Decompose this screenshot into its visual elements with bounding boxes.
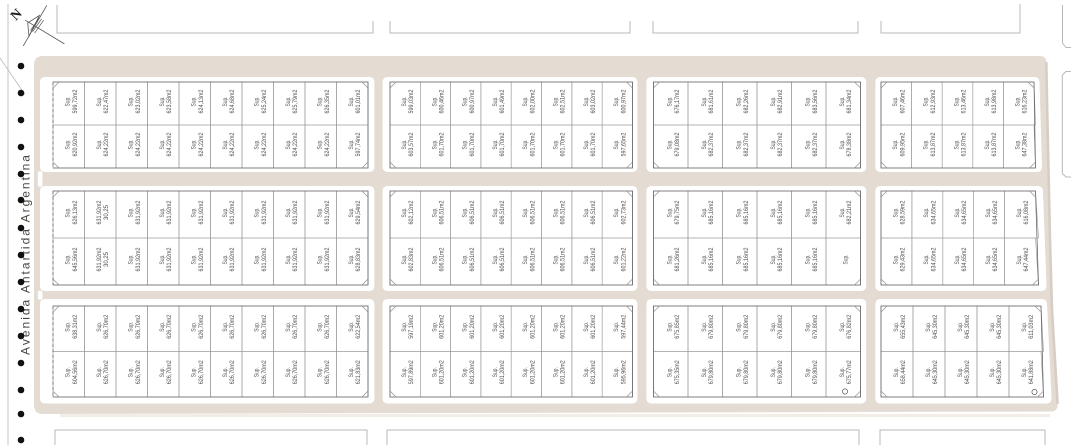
svg-text:Sup.: Sup. — [613, 96, 620, 106]
svg-text:Sup.: Sup. — [65, 322, 72, 332]
svg-text:601,20m2: 601,20m2 — [560, 314, 567, 338]
svg-text:685,16m2: 685,16m2 — [812, 247, 819, 271]
svg-text:624,22m2: 624,22m2 — [135, 132, 142, 156]
svg-text:Sup.: Sup. — [159, 254, 166, 264]
svg-text:Sup.: Sup. — [984, 96, 991, 106]
svg-text:620,92m2: 620,92m2 — [72, 132, 79, 156]
svg-text:Sup.: Sup. — [128, 254, 135, 264]
svg-text:Sup.: Sup. — [128, 96, 135, 106]
svg-text:634,65m2: 634,65m2 — [992, 247, 999, 271]
svg-text:Sup.: Sup. — [431, 96, 438, 106]
svg-text:Sup.: Sup. — [839, 139, 846, 149]
svg-text:Sup.: Sup. — [522, 207, 529, 217]
svg-text:683,56m2: 683,56m2 — [812, 89, 819, 113]
svg-text:631,92m2: 631,92m2 — [198, 200, 205, 224]
svg-text:Sup.: Sup. — [401, 254, 408, 264]
svg-text:Sup.: Sup. — [985, 254, 992, 264]
svg-text:631,92m2: 631,92m2 — [292, 247, 299, 271]
svg-text:679,08m2: 679,08m2 — [674, 132, 681, 156]
svg-text:631,92m2: 631,92m2 — [229, 247, 236, 271]
svg-text:681,61m2: 681,61m2 — [708, 89, 715, 113]
svg-text:Sup.: Sup. — [317, 139, 324, 149]
svg-text:622,54m2: 622,54m2 — [355, 314, 362, 338]
svg-text:Sup.: Sup. — [191, 367, 198, 377]
svg-text:622,47m2: 622,47m2 — [103, 89, 110, 113]
svg-text:601,20m2: 601,20m2 — [469, 360, 476, 384]
svg-text:Sup.: Sup. — [893, 322, 900, 332]
svg-text:623,58m2: 623,58m2 — [166, 89, 173, 113]
svg-text:658,44m2: 658,44m2 — [900, 360, 907, 384]
svg-text:Sup.: Sup. — [923, 96, 930, 106]
svg-text:631,92m2: 631,92m2 — [324, 247, 331, 271]
svg-text:634,65m2: 634,65m2 — [961, 247, 968, 271]
svg-text:Sup.: Sup. — [736, 367, 743, 377]
svg-text:645,30m2: 645,30m2 — [996, 314, 1003, 338]
svg-text:Sup.: Sup. — [222, 367, 229, 377]
svg-text:Sup.: Sup. — [254, 322, 261, 332]
svg-text:606,51m2: 606,51m2 — [529, 200, 536, 224]
svg-text:Sup.: Sup. — [770, 254, 777, 264]
svg-text:600,97m2: 600,97m2 — [469, 89, 476, 113]
svg-text:Sup.: Sup. — [317, 207, 324, 217]
svg-text:Sup.: Sup. — [159, 367, 166, 377]
svg-text:Sup.: Sup. — [159, 139, 166, 149]
svg-text:685,16m2: 685,16m2 — [708, 247, 715, 271]
svg-text:Sup.: Sup. — [492, 367, 499, 377]
svg-text:631,92m2: 631,92m2 — [166, 200, 173, 224]
svg-text:Sup.: Sup. — [770, 207, 777, 217]
svg-text:631,92m2: 631,92m2 — [198, 247, 205, 271]
svg-text:626,13m2: 626,13m2 — [72, 200, 79, 224]
svg-text:601,01m2: 601,01m2 — [355, 89, 362, 113]
svg-text:Sup.: Sup. — [553, 322, 560, 332]
svg-text:601,20m2: 601,20m2 — [439, 314, 446, 338]
svg-text:Sup.: Sup. — [191, 322, 198, 332]
svg-text:Sup.: Sup. — [953, 96, 960, 106]
svg-text:Sup.: Sup. — [492, 322, 499, 332]
svg-text:626,70m2: 626,70m2 — [261, 360, 268, 384]
svg-text:Sup.: Sup. — [222, 322, 229, 332]
svg-text:Sup.: Sup. — [613, 139, 620, 149]
svg-text:601,20m2: 601,20m2 — [499, 314, 506, 338]
svg-text:Sup.: Sup. — [701, 96, 708, 106]
svg-text:Sup.: Sup. — [667, 139, 674, 149]
svg-text:599,72m2: 599,72m2 — [72, 89, 79, 113]
svg-text:626,35m2: 626,35m2 — [324, 89, 331, 113]
svg-text:601,70m2: 601,70m2 — [499, 132, 506, 156]
svg-text:Sup.: Sup. — [1016, 207, 1023, 217]
svg-text:631,92m2: 631,92m2 — [261, 247, 268, 271]
svg-text:Sup.: Sup. — [317, 367, 324, 377]
svg-text:600,97m2: 600,97m2 — [620, 89, 627, 113]
svg-text:Sup.: Sup. — [667, 207, 674, 217]
svg-text:625,24m2: 625,24m2 — [261, 89, 268, 113]
svg-text:626,70m2: 626,70m2 — [103, 314, 110, 338]
svg-text:Sup.: Sup. — [348, 254, 355, 264]
svg-text:Sup.: Sup. — [805, 254, 812, 264]
svg-text:613,46m2: 613,46m2 — [961, 89, 968, 113]
svg-text:Sup.: Sup. — [770, 96, 777, 106]
svg-text:645,30m2: 645,30m2 — [964, 360, 971, 384]
svg-text:682,37m2: 682,37m2 — [708, 132, 715, 156]
svg-text:645,56m2: 645,56m2 — [72, 247, 79, 271]
svg-text:616,23m2: 616,23m2 — [1022, 89, 1029, 113]
svg-text:679,80m2: 679,80m2 — [743, 314, 750, 338]
svg-text:Sup.: Sup. — [191, 254, 198, 264]
svg-text:597,19m2: 597,19m2 — [408, 314, 415, 338]
svg-text:Sup.: Sup. — [953, 139, 960, 149]
svg-text:606,51m2: 606,51m2 — [529, 247, 536, 271]
svg-text:612,93m2: 612,93m2 — [930, 89, 937, 113]
svg-text:631,92m2: 631,92m2 — [229, 200, 236, 224]
svg-text:Sup.: Sup. — [254, 367, 261, 377]
svg-text:Sup.: Sup. — [583, 96, 590, 106]
svg-text:679,80m2: 679,80m2 — [812, 360, 819, 384]
svg-text:606,51m2: 606,51m2 — [439, 200, 446, 224]
svg-text:601,70m2: 601,70m2 — [529, 132, 536, 156]
svg-text:621,83m2: 621,83m2 — [355, 360, 362, 384]
svg-text:603,02m2: 603,02m2 — [590, 89, 597, 113]
svg-text:601,70m2: 601,70m2 — [439, 132, 446, 156]
svg-text:647,44m2: 647,44m2 — [1023, 247, 1030, 271]
svg-text:Sup.: Sup. — [254, 96, 261, 106]
svg-text:Sup.: Sup. — [553, 367, 560, 377]
svg-text:626,70m2: 626,70m2 — [324, 360, 331, 384]
svg-text:Sup.: Sup. — [1021, 367, 1028, 377]
svg-text:602,73m2: 602,73m2 — [620, 200, 627, 224]
svg-text:Sup.: Sup. — [522, 367, 529, 377]
svg-text:Sup.: Sup. — [462, 367, 469, 377]
svg-text:Sup.: Sup. — [191, 96, 198, 106]
svg-text:624,22m2: 624,22m2 — [229, 132, 236, 156]
svg-text:626,70m2: 626,70m2 — [135, 360, 142, 384]
svg-text:Sup.: Sup. — [522, 322, 529, 332]
svg-text:Sup.: Sup. — [191, 207, 198, 217]
svg-text:Sup.: Sup. — [1015, 96, 1022, 106]
svg-text:Sup.: Sup. — [348, 139, 355, 149]
svg-text:613,98m2: 613,98m2 — [991, 89, 998, 113]
svg-text:626,70m2: 626,70m2 — [261, 314, 268, 338]
svg-text:Sup.: Sup. — [667, 367, 674, 377]
svg-text:678,38m2: 678,38m2 — [846, 132, 853, 156]
svg-text:638,31m2: 638,31m2 — [72, 314, 79, 338]
svg-text:Sup.: Sup. — [957, 367, 964, 377]
svg-text:Sup.: Sup. — [65, 254, 72, 264]
svg-text:Sup.: Sup. — [285, 254, 292, 264]
svg-text:623,02m2: 623,02m2 — [135, 89, 142, 113]
svg-text:601,20m2: 601,20m2 — [560, 360, 567, 384]
svg-text:601,20m2: 601,20m2 — [439, 360, 446, 384]
svg-text:Sup.: Sup. — [839, 207, 846, 217]
svg-text:Sup.: Sup. — [401, 322, 408, 332]
svg-text:Sup.: Sup. — [462, 207, 469, 217]
svg-text:Sup.: Sup. — [128, 207, 135, 217]
svg-text:Sup.: Sup. — [892, 254, 899, 264]
svg-text:Sup.: Sup. — [1021, 322, 1028, 332]
svg-text:Sup.: Sup. — [736, 254, 743, 264]
svg-text:Sup.: Sup. — [285, 96, 292, 106]
svg-text:611,03m2: 611,03m2 — [1028, 314, 1035, 338]
svg-text:Sup.: Sup. — [128, 139, 135, 149]
svg-text:682,21m2: 682,21m2 — [846, 200, 853, 224]
svg-text:613,87m2: 613,87m2 — [930, 132, 937, 156]
svg-text:Sup.: Sup. — [96, 96, 103, 106]
svg-text:626,70m2: 626,70m2 — [229, 360, 236, 384]
svg-text:631,92m2: 631,92m2 — [96, 200, 103, 224]
svg-text:613,87m2: 613,87m2 — [991, 132, 998, 156]
svg-text:Sup.: Sup. — [1016, 254, 1023, 264]
svg-text:599,03m2: 599,03m2 — [408, 89, 415, 113]
svg-text:631,92m2: 631,92m2 — [261, 200, 268, 224]
svg-text:Sup.: Sup. — [923, 139, 930, 149]
svg-text:634,65m2: 634,65m2 — [930, 247, 937, 271]
svg-text:Sup.: Sup. — [613, 207, 620, 217]
svg-text:685,16m2: 685,16m2 — [777, 200, 784, 224]
svg-text:601,20m2: 601,20m2 — [529, 314, 536, 338]
svg-text:601,22m2: 601,22m2 — [620, 247, 627, 271]
svg-text:Sup.: Sup. — [954, 207, 961, 217]
svg-text:626,70m2: 626,70m2 — [198, 360, 205, 384]
svg-text:634,65m2: 634,65m2 — [930, 200, 937, 224]
svg-text:Sup.: Sup. — [431, 207, 438, 217]
svg-text:Sup.: Sup. — [667, 96, 674, 106]
svg-text:Sup.: Sup. — [522, 139, 529, 149]
svg-text:Sup.: Sup. — [701, 322, 708, 332]
svg-text:Sup.: Sup. — [989, 367, 996, 377]
svg-text:602,00m2: 602,00m2 — [529, 89, 536, 113]
svg-text:624,22m2: 624,22m2 — [261, 132, 268, 156]
svg-text:Sup.: Sup. — [701, 367, 708, 377]
svg-text:606,51m2: 606,51m2 — [499, 200, 506, 224]
svg-text:Sup.: Sup. — [65, 139, 72, 149]
svg-text:Sup.: Sup. — [492, 207, 499, 217]
svg-text:655,43m2: 655,43m2 — [900, 314, 907, 338]
svg-text:628,59m2: 628,59m2 — [900, 200, 907, 224]
svg-text:682,26m2: 682,26m2 — [743, 89, 750, 113]
svg-text:Sup.: Sup. — [985, 207, 992, 217]
svg-text:Sup.: Sup. — [736, 139, 743, 149]
svg-text:645,30m2: 645,30m2 — [932, 360, 939, 384]
svg-text:679,80m2: 679,80m2 — [777, 314, 784, 338]
svg-text:Sup.: Sup. — [317, 322, 324, 332]
svg-text:Sup.: Sup. — [65, 367, 72, 377]
svg-text:685,16m2: 685,16m2 — [743, 200, 750, 224]
svg-text:606,51m2: 606,51m2 — [560, 200, 567, 224]
svg-text:597,65m2: 597,65m2 — [620, 132, 627, 156]
svg-text:603,57m2: 603,57m2 — [408, 132, 415, 156]
svg-text:Sup.: Sup. — [736, 96, 743, 106]
svg-text:Sup.: Sup. — [462, 322, 469, 332]
svg-text:679,80m2: 679,80m2 — [777, 360, 784, 384]
svg-text:631,92m2: 631,92m2 — [292, 200, 299, 224]
svg-text:Sup.: Sup. — [401, 96, 408, 106]
svg-text:Sup.: Sup. — [957, 322, 964, 332]
svg-text:Sup.: Sup. — [892, 96, 899, 106]
svg-text:Sup.: Sup. — [222, 139, 229, 149]
svg-text:Sup.: Sup. — [285, 367, 292, 377]
svg-text:676,17m2: 676,17m2 — [674, 89, 681, 113]
svg-text:685,16m2: 685,16m2 — [708, 200, 715, 224]
svg-text:Sup.: Sup. — [553, 139, 560, 149]
svg-text:Sup.: Sup. — [925, 367, 932, 377]
svg-text:681,34m2: 681,34m2 — [846, 89, 853, 113]
svg-text:Sup.: Sup. — [583, 207, 590, 217]
svg-text:631,92m2: 631,92m2 — [135, 200, 142, 224]
svg-text:Sup.: Sup. — [613, 254, 620, 264]
svg-text:624,22m2: 624,22m2 — [103, 132, 110, 156]
svg-text:685,16m2: 685,16m2 — [812, 200, 819, 224]
svg-text:Sup.: Sup. — [492, 96, 499, 106]
svg-text:Sup.: Sup. — [923, 254, 930, 264]
svg-text:Sup.: Sup. — [839, 322, 846, 332]
svg-text:685,16m2: 685,16m2 — [777, 247, 784, 271]
svg-text:624,22m2: 624,22m2 — [166, 132, 173, 156]
svg-text:602,12m2: 602,12m2 — [408, 200, 415, 224]
svg-text:Sup.: Sup. — [839, 96, 846, 106]
svg-text:30,25: 30,25 — [103, 205, 110, 220]
svg-text:Sup.: Sup. — [1015, 139, 1022, 149]
svg-text:645,30m2: 645,30m2 — [932, 314, 939, 338]
svg-text:Sup.: Sup. — [770, 367, 777, 377]
svg-text:Sup.: Sup. — [923, 207, 930, 217]
svg-text:634,65m2: 634,65m2 — [992, 200, 999, 224]
svg-text:631,92m2: 631,92m2 — [166, 247, 173, 271]
svg-text:624,22m2: 624,22m2 — [198, 132, 205, 156]
svg-text:616,08m2: 616,08m2 — [1023, 200, 1030, 224]
svg-text:597,44m2: 597,44m2 — [620, 314, 627, 338]
svg-text:626,70m2: 626,70m2 — [229, 314, 236, 338]
svg-text:600,46m2: 600,46m2 — [439, 89, 446, 113]
svg-text:629,43m2: 629,43m2 — [900, 247, 907, 271]
svg-text:Sup.: Sup. — [553, 254, 560, 264]
svg-text:679,75m2: 679,75m2 — [674, 200, 681, 224]
svg-text:601,20m2: 601,20m2 — [499, 360, 506, 384]
svg-text:Sup.: Sup. — [159, 207, 166, 217]
svg-text:601,20m2: 601,20m2 — [590, 360, 597, 384]
svg-text:613,87m2: 613,87m2 — [961, 132, 968, 156]
svg-text:625,79m2: 625,79m2 — [292, 89, 299, 113]
svg-text:626,70m2: 626,70m2 — [292, 360, 299, 384]
svg-text:Sup.: Sup. — [431, 139, 438, 149]
svg-text:601,20m2: 601,20m2 — [529, 360, 536, 384]
svg-text:645,30m2: 645,30m2 — [996, 360, 1003, 384]
svg-text:Sup.: Sup. — [583, 322, 590, 332]
svg-text:606,51m2: 606,51m2 — [590, 247, 597, 271]
svg-text:601,70m2: 601,70m2 — [590, 132, 597, 156]
svg-text:601,70m2: 601,70m2 — [469, 132, 476, 156]
svg-text:Sup.: Sup. — [954, 254, 961, 264]
svg-text:Sup.: Sup. — [348, 322, 355, 332]
svg-text:606,51m2: 606,51m2 — [499, 247, 506, 271]
svg-text:30,25: 30,25 — [103, 252, 110, 267]
svg-text:606,51m2: 606,51m2 — [439, 247, 446, 271]
svg-text:624,13m2: 624,13m2 — [198, 89, 205, 113]
svg-text:Sup.: Sup. — [65, 96, 72, 106]
svg-text:Sup.: Sup. — [736, 322, 743, 332]
svg-text:Sup.: Sup. — [96, 322, 103, 332]
svg-text:Sup.: Sup. — [522, 96, 529, 106]
svg-text:Sup.: Sup. — [254, 207, 261, 217]
svg-text:Sup.: Sup. — [805, 322, 812, 332]
svg-text:601,70m2: 601,70m2 — [560, 132, 567, 156]
svg-text:601,20m2: 601,20m2 — [590, 314, 597, 338]
svg-text:607,46m2: 607,46m2 — [899, 89, 906, 113]
svg-text:Sup.: Sup. — [65, 207, 72, 217]
svg-text:624,22m2: 624,22m2 — [324, 132, 331, 156]
svg-text:609,95m2: 609,95m2 — [899, 132, 906, 156]
svg-text:Sup.: Sup. — [401, 207, 408, 217]
svg-text:602,83m2: 602,83m2 — [408, 247, 415, 271]
svg-text:Sup.: Sup. — [839, 367, 846, 377]
svg-text:Sup.: Sup. — [348, 96, 355, 106]
svg-text:Sup.: Sup. — [667, 254, 674, 264]
svg-text:Sup.: Sup. — [128, 322, 135, 332]
svg-text:Sup.: Sup. — [401, 367, 408, 377]
svg-text:679,80m2: 679,80m2 — [708, 360, 715, 384]
svg-text:681,26m2: 681,26m2 — [674, 247, 681, 271]
svg-text:Sup.: Sup. — [492, 139, 499, 149]
svg-text:597,74m2: 597,74m2 — [355, 132, 362, 156]
svg-text:675,85m2: 675,85m2 — [674, 314, 681, 338]
svg-text:Sup.: Sup. — [285, 139, 292, 149]
svg-text:641,88m2: 641,88m2 — [1028, 360, 1035, 384]
svg-text:604,56m2: 604,56m2 — [72, 360, 79, 384]
svg-text:602,51m2: 602,51m2 — [560, 89, 567, 113]
svg-text:Sup.: Sup. — [348, 367, 355, 377]
svg-text:626,70m2: 626,70m2 — [324, 314, 331, 338]
svg-text:Sup.: Sup. — [805, 96, 812, 106]
svg-text:Sup.: Sup. — [431, 254, 438, 264]
svg-text:682,37m2: 682,37m2 — [777, 132, 784, 156]
svg-text:Sup.: Sup. — [805, 207, 812, 217]
svg-text:Sup.: Sup. — [805, 139, 812, 149]
svg-text:Sup.: Sup. — [701, 139, 708, 149]
svg-text:601,20m2: 601,20m2 — [469, 314, 476, 338]
svg-text:Sup.: Sup. — [285, 207, 292, 217]
svg-text:Sup.: Sup. — [843, 254, 850, 264]
svg-text:606,51m2: 606,51m2 — [469, 200, 476, 224]
svg-text:626,70m2: 626,70m2 — [135, 314, 142, 338]
svg-text:682,91m2: 682,91m2 — [777, 89, 784, 113]
svg-text:Sup.: Sup. — [701, 254, 708, 264]
svg-text:597,89m2: 597,89m2 — [408, 360, 415, 384]
svg-text:685,16m2: 685,16m2 — [743, 247, 750, 271]
svg-text:Sup.: Sup. — [893, 367, 900, 377]
svg-text:Sup.: Sup. — [892, 207, 899, 217]
svg-text:Sup.: Sup. — [317, 96, 324, 106]
svg-text:Sup.: Sup. — [401, 139, 408, 149]
svg-text:Sup.: Sup. — [159, 322, 166, 332]
svg-text:675,77m2: 675,77m2 — [846, 360, 853, 384]
svg-text:Sup.: Sup. — [431, 367, 438, 377]
svg-text:626,70m2: 626,70m2 — [166, 314, 173, 338]
svg-text:Sup.: Sup. — [462, 254, 469, 264]
svg-text:Sup.: Sup. — [583, 367, 590, 377]
svg-text:Sup.: Sup. — [770, 139, 777, 149]
svg-text:Sup.: Sup. — [553, 207, 560, 217]
svg-text:682,37m2: 682,37m2 — [743, 132, 750, 156]
svg-text:Sup.: Sup. — [553, 96, 560, 106]
svg-text:Sup.: Sup. — [805, 367, 812, 377]
svg-text:624,68m2: 624,68m2 — [229, 89, 236, 113]
svg-text:Sup.: Sup. — [522, 254, 529, 264]
svg-text:595,96m2: 595,96m2 — [620, 360, 627, 384]
svg-text:Sup.: Sup. — [128, 367, 135, 377]
svg-text:601,49m2: 601,49m2 — [499, 89, 506, 113]
svg-text:Sup.: Sup. — [462, 96, 469, 106]
svg-text:Sup.: Sup. — [583, 254, 590, 264]
svg-text:Sup.: Sup. — [925, 322, 932, 332]
